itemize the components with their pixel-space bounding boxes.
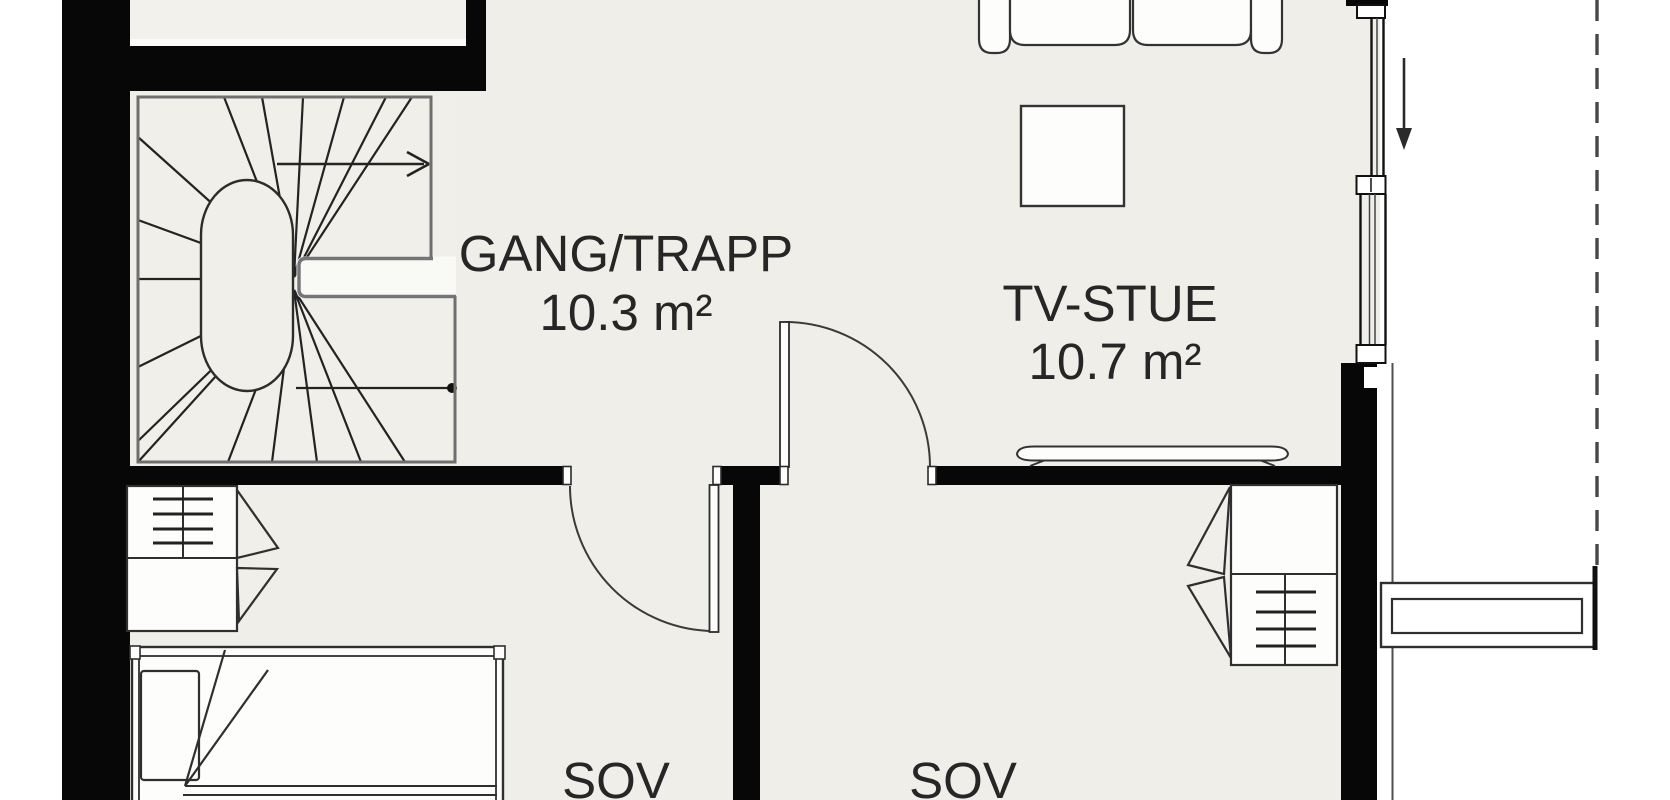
- svg-text:SOV: SOV: [909, 752, 1017, 800]
- svg-text:10.7 m²: 10.7 m²: [1029, 333, 1202, 390]
- svg-text:SOV: SOV: [562, 752, 670, 800]
- svg-text:10.3 m²: 10.3 m²: [540, 284, 713, 341]
- svg-text:TV-STUE: TV-STUE: [1002, 275, 1217, 332]
- svg-text:GANG/TRAPP: GANG/TRAPP: [459, 225, 793, 282]
